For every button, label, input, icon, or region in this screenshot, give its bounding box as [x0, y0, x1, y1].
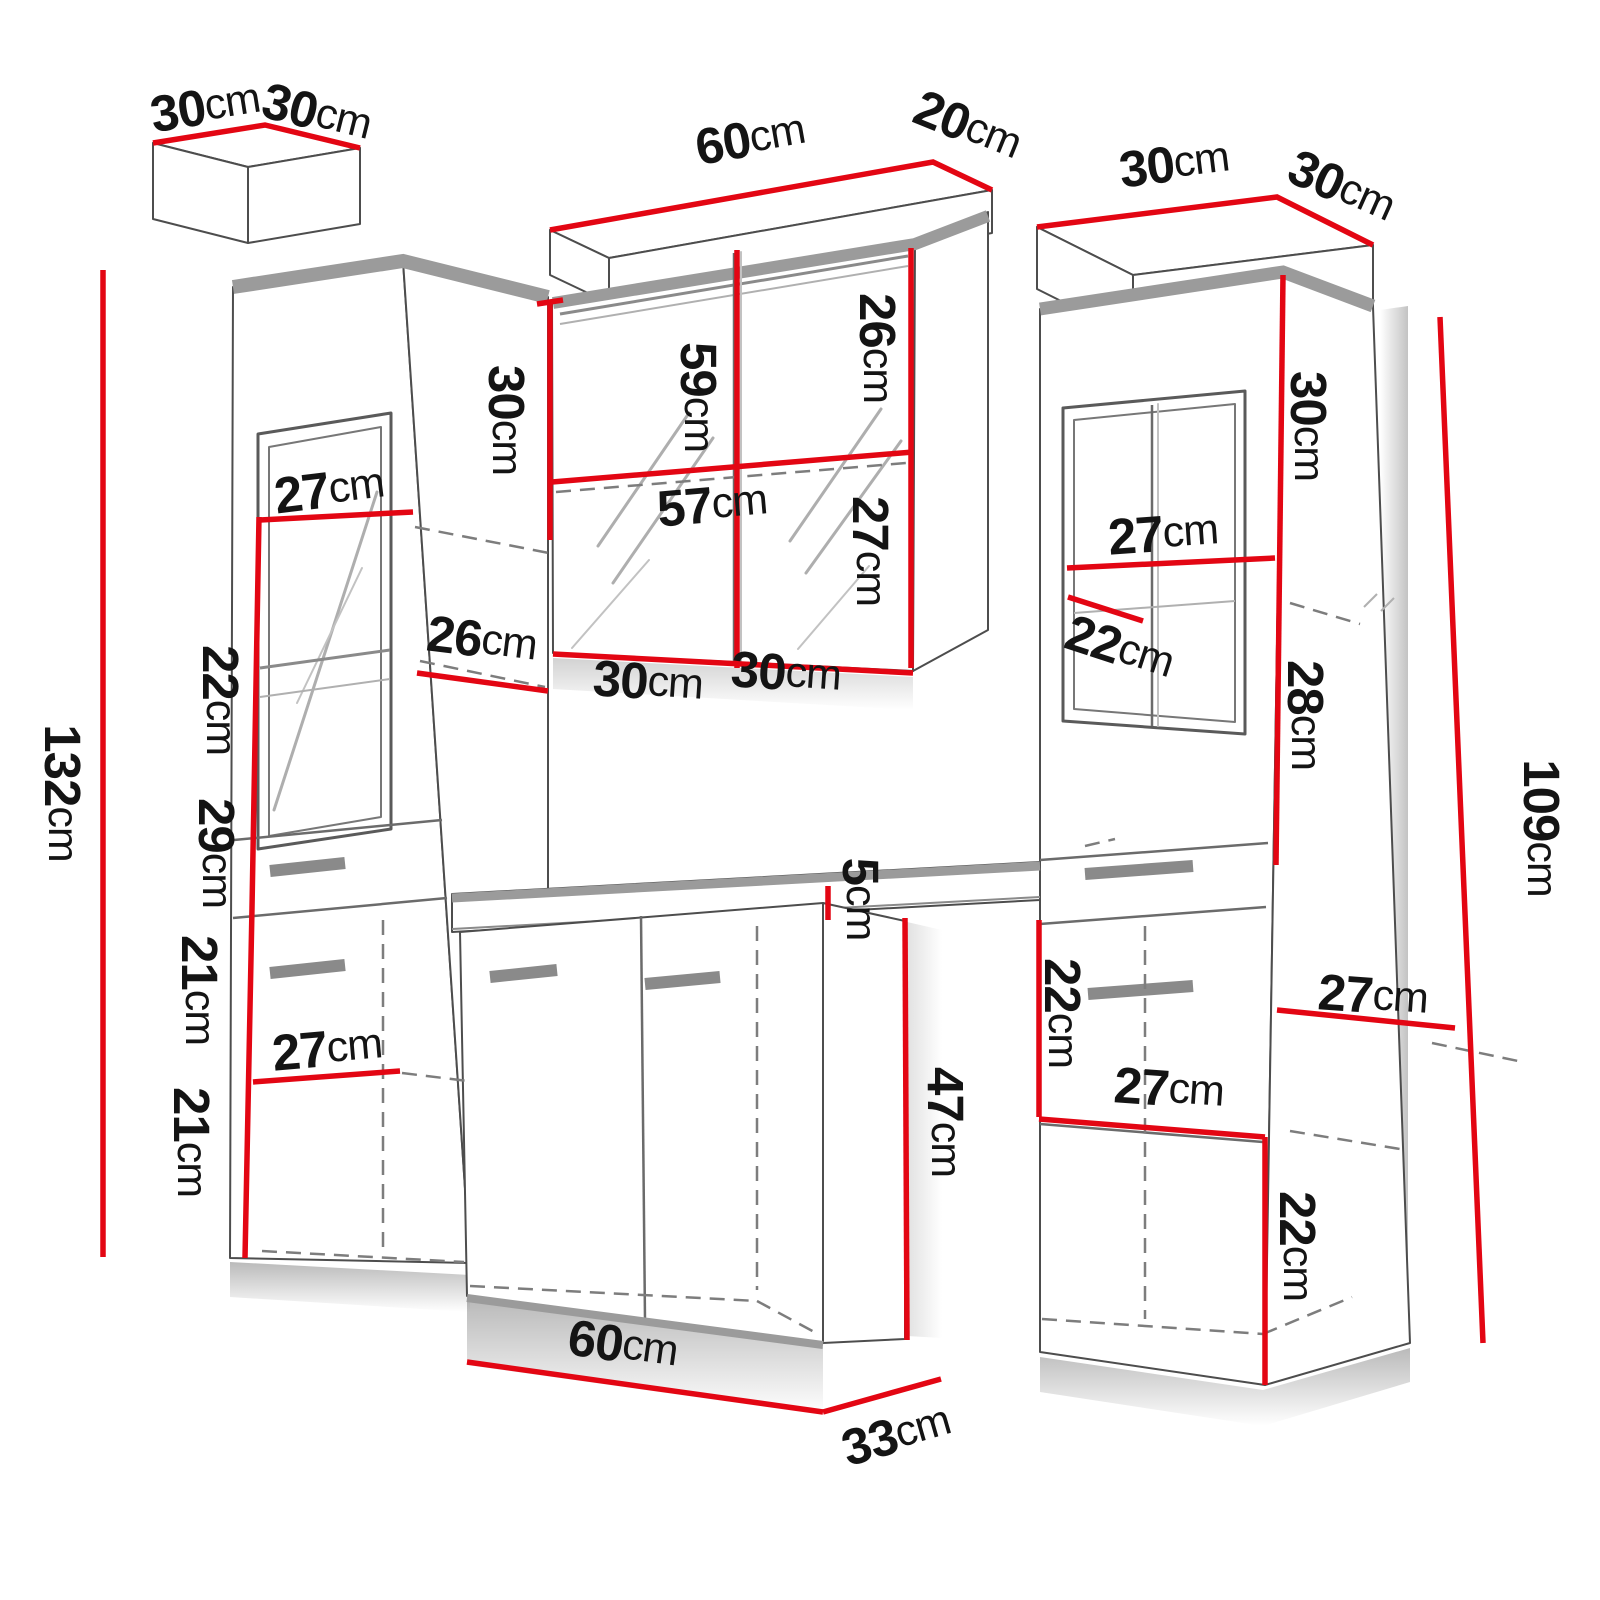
right-cabinet-front — [1040, 273, 1283, 1385]
dim-label-right-cabinet-top-30cm: 30cm — [1116, 128, 1232, 198]
dim-label-mirror-cabinet-26cm: 26cm — [850, 293, 907, 403]
dim-label-washbasin-cabinet-47cm: 47cm — [918, 1067, 975, 1177]
right-cabinet-drawer-handle — [1088, 986, 1193, 994]
dim-label-mirror-cabinet-top-20cm: 20cm — [906, 78, 1029, 172]
dim-label-right-cabinet-30cm: 30cm — [1281, 371, 1338, 481]
left-cabinet-drawer-handle — [270, 863, 345, 871]
dim-label-right-cabinet-109cm: 109cm — [1514, 759, 1571, 896]
dim-label-mirror-cabinet-top-60cm: 60cm — [691, 100, 809, 175]
dim-label-left-cabinet-21cm: 21cm — [172, 935, 229, 1045]
dim-label-right-cabinet-28cm: 28cm — [1278, 660, 1335, 770]
dim-label-left-cabinet-29cm: 29cm — [189, 798, 246, 908]
dim-label-right-cabinet-22cm: 22cm — [1035, 958, 1092, 1068]
dim-label-mirror-cabinet-30cm: 30cm — [479, 365, 536, 475]
washbasin-cabinet-side — [823, 903, 905, 1343]
left-cabinet-drawer-handle — [270, 965, 345, 973]
height-109-line — [1440, 317, 1483, 1343]
dim-label-left-cabinet-22cm: 22cm — [193, 645, 250, 755]
dim-label-mirror-cabinet-27cm: 27cm — [843, 496, 900, 606]
furniture-dimension-diagram: 30cm30cm60cm20cm30cm30cm132cm27cm22cm29c… — [0, 0, 1600, 1600]
dim-label-right-cabinet-22cm: 22cm — [1270, 1191, 1327, 1301]
right-cabinet-drawer-handle — [1085, 866, 1193, 874]
dim-label-mirror-cabinet-59cm: 59cm — [671, 342, 728, 452]
washbasin-door-handle — [645, 977, 720, 984]
washbasin-door-handle — [490, 970, 557, 977]
right-tall-cabinet — [1037, 197, 1410, 1385]
dim-label-left-cabinet-21cm: 21cm — [164, 1087, 221, 1197]
dim-label-washbasin-cabinet-5cm: 5cm — [833, 858, 890, 941]
mirror-cabinet — [550, 162, 992, 671]
diagram-canvas: 30cm30cm60cm20cm30cm30cm132cm27cm22cm29c… — [0, 0, 1600, 1600]
dim-label-left-cabinet-132cm: 132cm — [35, 724, 92, 861]
dim-label-right-cabinet-27cm: 27cm — [1316, 963, 1430, 1028]
mirror-cabinet-side — [913, 212, 988, 671]
